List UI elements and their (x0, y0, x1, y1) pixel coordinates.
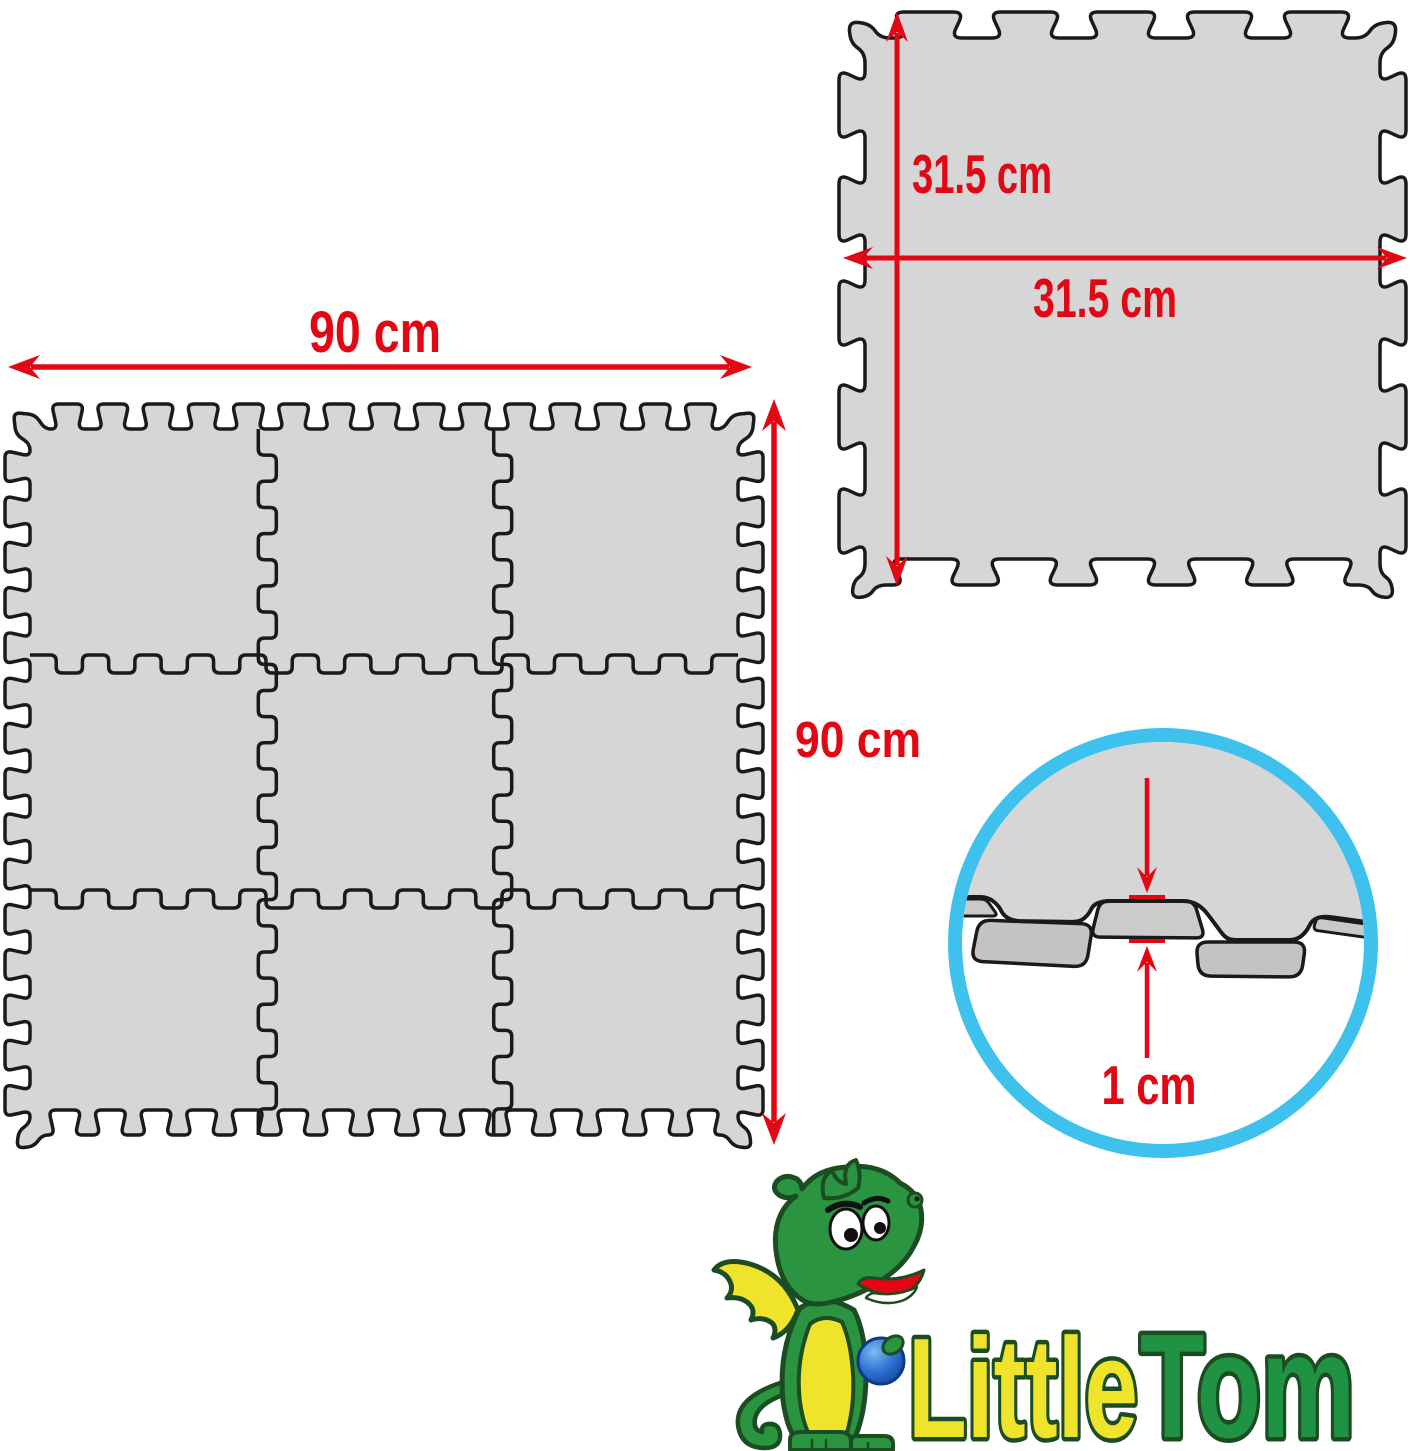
cross-section-tab-face (1093, 901, 1203, 938)
mat-grid-diagram (5, 404, 763, 1148)
dragon-mascot (714, 1160, 924, 1450)
grid-width-label: 90 cm (309, 300, 441, 365)
logo-word-little: Little (908, 1309, 1138, 1451)
mat-grid-outline (5, 404, 763, 1148)
infographic-canvas: 90 cm 90 cm 31.5 cm 31.5 cm 1 cm (0, 0, 1421, 1451)
tile-height-label: 31.5 cm (912, 143, 1052, 205)
logo-word-tom: Tom (1140, 1304, 1355, 1451)
dragon-nostril-dot (915, 1197, 920, 1202)
thickness-label: 1 cm (1102, 1054, 1197, 1116)
grid-height-arrow (762, 399, 786, 1145)
dragon-foot (851, 1436, 893, 1450)
dragon-eye (830, 1209, 862, 1249)
cross-section-right-face (1197, 942, 1305, 977)
dragon-foot (790, 1432, 851, 1450)
dragon-pupil (874, 1222, 886, 1234)
cross-section-left-face (973, 920, 1091, 966)
dragon-pupil (844, 1228, 858, 1242)
grid-height-label: 90 cm (795, 711, 921, 768)
dragon-eye (863, 1206, 889, 1240)
littletom-logo: Little Tom (714, 1160, 1355, 1451)
dragon-belly (799, 1318, 854, 1445)
puzzle-mat-infographic: 90 cm 90 cm 31.5 cm 31.5 cm 1 cm (0, 0, 1421, 1451)
tile-width-label: 31.5 cm (1033, 267, 1177, 329)
